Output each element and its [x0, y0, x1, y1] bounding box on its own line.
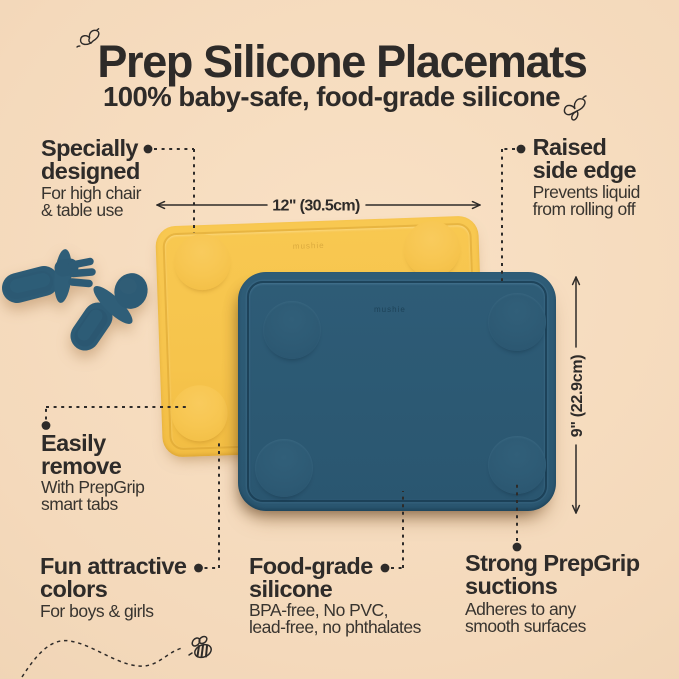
svg-text:9" (22.9cm): 9" (22.9cm)	[569, 355, 586, 438]
svg-text:12" (30.5cm): 12" (30.5cm)	[272, 198, 360, 215]
